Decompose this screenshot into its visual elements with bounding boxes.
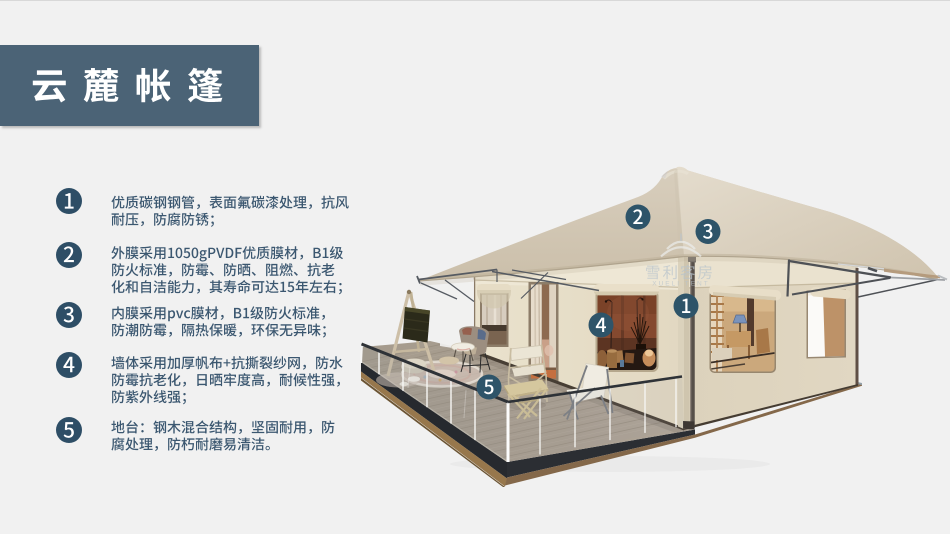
svg-text:XUELI TENT: XUELI TENT [652,281,709,288]
